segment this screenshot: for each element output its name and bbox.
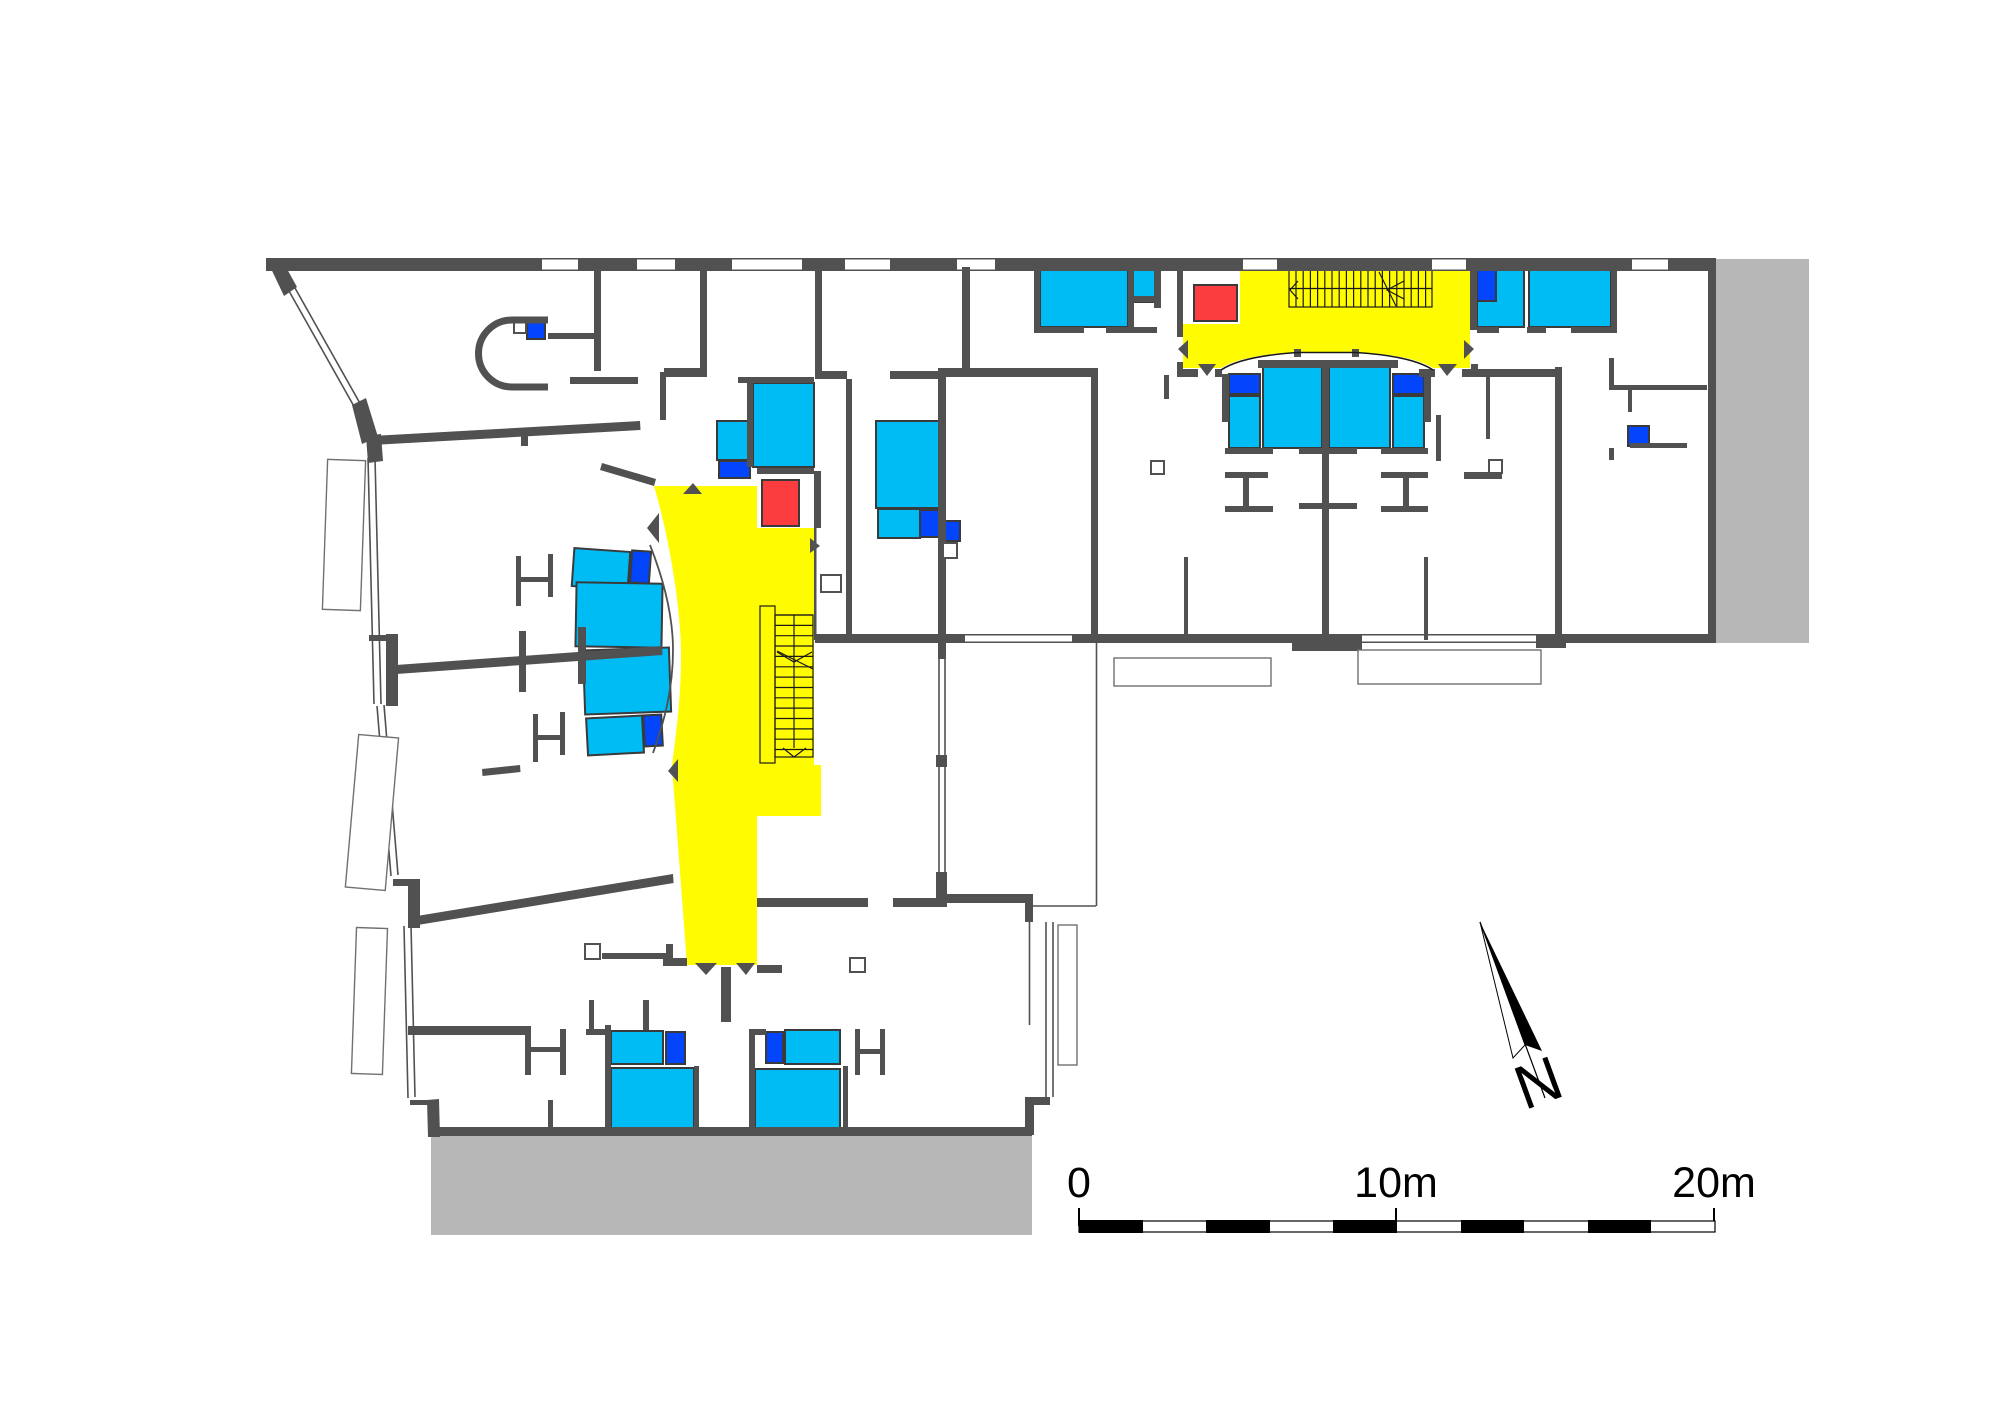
- svg-text:10m: 10m: [1354, 1159, 1438, 1207]
- svg-text:0: 0: [1067, 1159, 1091, 1207]
- svg-text:20m: 20m: [1672, 1159, 1756, 1207]
